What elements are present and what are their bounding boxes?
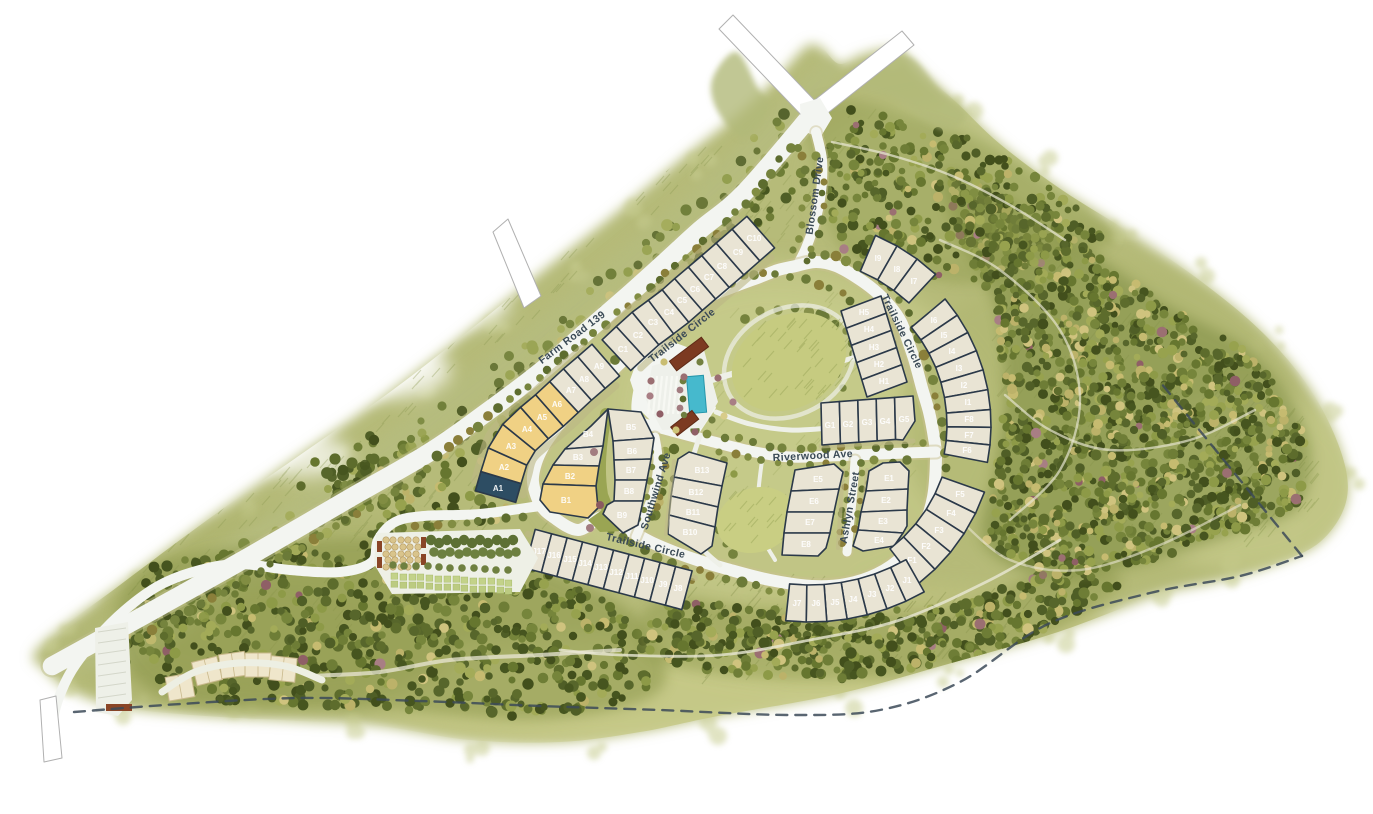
svg-text:I8: I8 bbox=[894, 265, 901, 274]
svg-text:F3: F3 bbox=[934, 526, 944, 535]
svg-text:E7: E7 bbox=[805, 518, 815, 527]
svg-text:C3: C3 bbox=[648, 318, 659, 327]
svg-text:B7: B7 bbox=[626, 466, 637, 475]
svg-text:I7: I7 bbox=[911, 277, 918, 286]
svg-text:I5: I5 bbox=[941, 331, 948, 340]
svg-text:G2: G2 bbox=[843, 420, 854, 429]
svg-text:G4: G4 bbox=[880, 417, 891, 426]
svg-text:C10: C10 bbox=[747, 234, 762, 243]
svg-text:G5: G5 bbox=[899, 415, 910, 424]
svg-text:F6: F6 bbox=[962, 446, 972, 455]
svg-text:C7: C7 bbox=[704, 273, 715, 282]
svg-text:E1: E1 bbox=[884, 474, 894, 483]
svg-text:J9: J9 bbox=[659, 580, 668, 589]
svg-text:C4: C4 bbox=[664, 308, 675, 317]
svg-text:B4: B4 bbox=[583, 430, 594, 439]
svg-text:J13: J13 bbox=[594, 563, 608, 572]
svg-text:C9: C9 bbox=[733, 248, 744, 257]
svg-text:E8: E8 bbox=[801, 540, 811, 549]
svg-text:C2: C2 bbox=[633, 331, 644, 340]
svg-text:J6: J6 bbox=[812, 599, 821, 608]
svg-text:A8: A8 bbox=[579, 375, 590, 384]
svg-text:F8: F8 bbox=[964, 415, 974, 424]
svg-text:G1: G1 bbox=[825, 421, 836, 430]
svg-text:B9: B9 bbox=[617, 511, 628, 520]
svg-text:H5: H5 bbox=[859, 308, 870, 317]
svg-text:I1: I1 bbox=[965, 398, 972, 407]
svg-text:H4: H4 bbox=[864, 325, 875, 334]
svg-text:B1: B1 bbox=[561, 496, 572, 505]
svg-text:A4: A4 bbox=[522, 425, 533, 434]
svg-text:E2: E2 bbox=[881, 496, 891, 505]
svg-text:A5: A5 bbox=[537, 413, 548, 422]
svg-text:J16: J16 bbox=[547, 551, 561, 560]
svg-text:F4: F4 bbox=[946, 509, 956, 518]
svg-text:A7: A7 bbox=[566, 386, 577, 395]
svg-text:E4: E4 bbox=[874, 536, 884, 545]
svg-text:C5: C5 bbox=[677, 296, 688, 305]
svg-text:H3: H3 bbox=[869, 343, 880, 352]
svg-text:A3: A3 bbox=[506, 442, 517, 451]
svg-text:H1: H1 bbox=[879, 377, 890, 386]
svg-text:B13: B13 bbox=[695, 466, 710, 475]
svg-text:B3: B3 bbox=[573, 453, 584, 462]
svg-text:A6: A6 bbox=[552, 400, 563, 409]
svg-text:J8: J8 bbox=[674, 584, 683, 593]
svg-text:G3: G3 bbox=[862, 418, 873, 427]
svg-text:I2: I2 bbox=[961, 381, 968, 390]
svg-text:I6: I6 bbox=[931, 316, 938, 325]
svg-text:B11: B11 bbox=[686, 508, 701, 517]
svg-text:J15: J15 bbox=[563, 555, 577, 564]
svg-text:I9: I9 bbox=[875, 254, 882, 263]
svg-text:B5: B5 bbox=[626, 423, 637, 432]
svg-text:A9: A9 bbox=[594, 362, 605, 371]
svg-text:F5: F5 bbox=[955, 490, 965, 499]
svg-text:B2: B2 bbox=[565, 472, 576, 481]
svg-text:J5: J5 bbox=[831, 598, 840, 607]
svg-text:I4: I4 bbox=[949, 347, 956, 356]
svg-text:J7: J7 bbox=[793, 599, 802, 608]
svg-text:C6: C6 bbox=[690, 285, 701, 294]
svg-text:B10: B10 bbox=[683, 528, 698, 537]
svg-text:B8: B8 bbox=[624, 487, 635, 496]
svg-text:J10: J10 bbox=[640, 576, 654, 585]
svg-text:E5: E5 bbox=[813, 475, 823, 484]
svg-text:I3: I3 bbox=[956, 364, 963, 373]
svg-text:J14: J14 bbox=[578, 559, 592, 568]
svg-text:J3: J3 bbox=[868, 590, 877, 599]
svg-text:H2: H2 bbox=[874, 360, 885, 369]
svg-text:A2: A2 bbox=[499, 463, 510, 472]
svg-text:C1: C1 bbox=[618, 345, 629, 354]
svg-text:E3: E3 bbox=[878, 517, 888, 526]
svg-text:F7: F7 bbox=[964, 431, 974, 440]
svg-text:J12: J12 bbox=[609, 568, 623, 577]
svg-text:J11: J11 bbox=[626, 572, 639, 581]
svg-text:B6: B6 bbox=[627, 447, 638, 456]
svg-text:J2: J2 bbox=[886, 584, 895, 593]
svg-text:F2: F2 bbox=[921, 542, 931, 551]
svg-text:E6: E6 bbox=[809, 497, 819, 506]
svg-text:A1: A1 bbox=[493, 484, 504, 493]
svg-text:J4: J4 bbox=[849, 595, 858, 604]
svg-text:J1: J1 bbox=[903, 576, 912, 585]
svg-text:B12: B12 bbox=[689, 488, 704, 497]
svg-text:C8: C8 bbox=[717, 262, 728, 271]
